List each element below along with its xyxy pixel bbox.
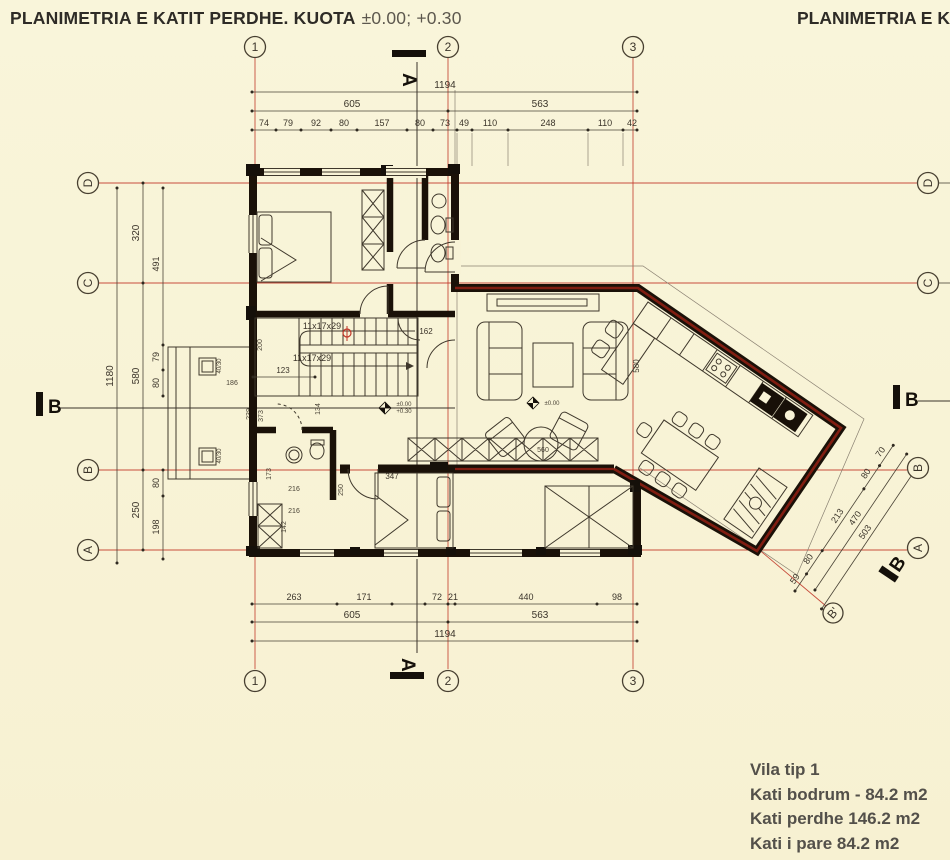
stairs-label-2: 11x17x29 (293, 353, 331, 363)
area-legend: Vila tip 1 Kati bodrum - 84.2 m2 Kati pe… (750, 758, 928, 856)
dim-hall-width: 134 (315, 403, 322, 415)
dim-chain: 80 (151, 478, 161, 488)
legend-line-2: Kati bodrum - 84.2 m2 (750, 783, 928, 808)
living-room: 580 560 (477, 294, 641, 461)
legend-line-3: Kati perdhe 146.2 m2 (750, 807, 928, 832)
floor-plan-drawing: 1194 605 563 74 79 92 80 157 80 73 49 11… (0, 0, 950, 860)
dim-bed-width: 347 (385, 472, 399, 481)
grid-bubble-c-right: C (921, 278, 935, 287)
dim-top-right: 563 (532, 99, 549, 110)
dim-niche: 162 (419, 327, 433, 336)
dim-chain: 491 (151, 256, 161, 271)
dim-bath-w: 142 (281, 521, 288, 533)
dim-bath-door: 216 (288, 486, 300, 493)
section-a-bar-bottom (390, 672, 424, 679)
dim-left-span: 580 (131, 367, 142, 384)
dim-bottom-left: 605 (344, 610, 361, 621)
dim-chain: 98 (612, 592, 622, 602)
extension-lines (455, 90, 864, 575)
grid-bubble-c-left: C (81, 278, 95, 287)
floor-plan-page: { "colors": {"paper":"#f8f3d6","grid_red… (0, 0, 950, 860)
dim-left-total: 1180 (105, 365, 116, 387)
section-b-label-left: B (48, 397, 62, 418)
dim-bottom-right: 563 (532, 610, 549, 621)
grid-bubble-b-left: B (81, 466, 95, 474)
dim-sofa: 560 (537, 447, 549, 454)
dim-chain: 110 (483, 118, 497, 128)
kitchen-counter (408, 438, 598, 461)
grid-bubble-d-left: D (81, 178, 95, 187)
section-a-label-bottom: A (397, 658, 418, 672)
grid-bubble-2-top: 2 (445, 40, 452, 54)
dim-chain: 198 (151, 519, 161, 534)
dim-bed-door: 250 (338, 484, 345, 496)
dim-left-span: 320 (131, 224, 142, 241)
dim-chain: 74 (259, 118, 269, 128)
grid-bubble-3-top: 3 (630, 40, 637, 54)
dim-top-left: 605 (344, 99, 361, 110)
dim-chain: 213 (829, 507, 846, 525)
dim-right-outer: 503 (857, 523, 874, 541)
dim-chain: 42 (627, 118, 637, 128)
dim-bath-h: 173 (266, 468, 273, 480)
dim-terrace-col: 40/30 (217, 358, 223, 374)
dim-bottom-total: 1194 (434, 629, 456, 640)
dim-chain: 80 (415, 118, 425, 128)
section-a-label-top: A (398, 73, 419, 87)
grid-bubble-a-right: A (911, 544, 925, 552)
level-zero-living: ±0.00 (545, 401, 561, 407)
dim-chain: 49 (459, 118, 469, 128)
dim-bath-door2: 216 (288, 508, 300, 515)
dimensions-left: 1180 320 580 250 491 79 80 80 198 (105, 183, 163, 563)
stairs: 11x17x29 11x17x29 123 162 200 134 (253, 318, 433, 415)
legend-line-4: Kati i pare 84.2 m2 (750, 832, 928, 857)
grid-bubble-d-right: D (921, 178, 935, 187)
dim-chain: 171 (356, 592, 371, 602)
dim-chain: 80 (339, 118, 349, 128)
stairs-label-1: 11x17x29 (303, 321, 341, 331)
dim-chain: 248 (540, 118, 555, 128)
dim-terrace-d2: 373 (258, 410, 265, 422)
dim-top-total: 1194 (434, 80, 456, 91)
dim-chain: 157 (374, 118, 389, 128)
level-entry: +0.30 (396, 409, 412, 415)
dim-chain: 110 (598, 118, 612, 128)
dim-chain: 263 (286, 592, 301, 602)
grid-bubble-2-bottom: 2 (445, 674, 452, 688)
dim-right-inner: 470 (847, 509, 864, 527)
dim-left-span: 250 (131, 501, 142, 518)
grid-bubble-1-bottom: 1 (252, 674, 259, 688)
dim-chain: 21 (448, 592, 458, 602)
section-a-bar-top (392, 50, 426, 57)
dim-terrace-w: 186 (226, 380, 238, 387)
grid-bubble-1-top: 1 (252, 40, 259, 54)
dim-chain: 73 (440, 118, 450, 128)
section-b-label-right: B (905, 390, 919, 411)
dim-terrace-col2: 40/30 (217, 448, 223, 464)
dimensions-bottom: 263 171 72 21 440 98 605 563 1194 (252, 592, 637, 641)
dim-chain: 80 (151, 378, 161, 388)
bedroom-upper (257, 190, 384, 282)
level-markers: ±0.00 +0.30 ±0.00 (379, 397, 560, 415)
grid-bubble-b-right: B (911, 464, 925, 472)
dimensions-right-angled: 59 80 213 80 70 470 503 (785, 438, 920, 609)
dim-chain: 79 (151, 352, 161, 362)
bedroom-lower: 347 (375, 472, 633, 548)
grid-bubble-3-bottom: 3 (630, 674, 637, 688)
grid-bubble-a-left: A (81, 546, 95, 554)
dim-chain: 92 (311, 118, 321, 128)
dim-chain: 79 (283, 118, 293, 128)
dim-chain: 440 (518, 592, 533, 602)
dimensions-top: 1194 605 563 74 79 92 80 157 80 73 49 11… (252, 80, 637, 130)
level-zero: ±0.00 (397, 402, 413, 408)
grid-bubbles: 1 2 3 1 2 3 D C B A D C B A B' (78, 37, 950, 692)
dim-chain: 72 (432, 592, 442, 602)
legend-line-1: Vila tip 1 (750, 758, 928, 783)
dim-stairs-width: 123 (276, 366, 290, 375)
dim-hall-depth: 200 (257, 339, 264, 351)
